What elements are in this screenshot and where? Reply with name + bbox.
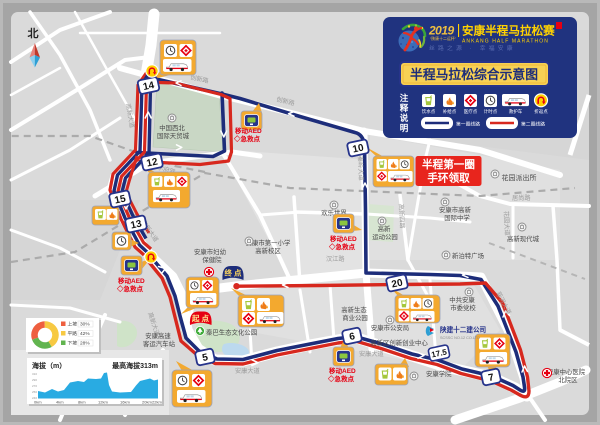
svg-text:下坡: 下坡	[68, 340, 78, 347]
svg-text:30%: 30%	[80, 322, 90, 328]
svg-text:移动AED: 移动AED	[118, 276, 145, 285]
svg-text:释: 释	[400, 103, 409, 113]
svg-text:国际天贸城: 国际天贸城	[157, 131, 190, 140]
svg-text:ANKANG HALF MARATHON: ANKANG HALF MARATHON	[462, 39, 549, 45]
svg-text:起 点: 起 点	[191, 313, 210, 323]
svg-text:北: 北	[28, 26, 39, 40]
svg-text:中共安康: 中共安康	[449, 295, 475, 304]
svg-text:终 点: 终 点	[223, 268, 242, 278]
svg-text:20km: 20km	[142, 400, 152, 405]
svg-text:北院区: 北院区	[558, 375, 578, 384]
svg-text:安康市妇幼: 安康市妇幼	[194, 247, 226, 256]
svg-text:说: 说	[400, 113, 409, 123]
svg-text:手环领取: 手环领取	[427, 172, 470, 185]
svg-text:秦巴生态文化公园: 秦巴生态文化公园	[206, 328, 257, 337]
svg-text:高新生态: 高新生态	[341, 305, 367, 314]
svg-text:饮水点: 饮水点	[422, 108, 436, 115]
svg-text:移动AED: 移动AED	[235, 126, 262, 135]
svg-text:290: 290	[32, 378, 37, 382]
svg-text:花园派出所: 花园派出所	[502, 173, 537, 182]
svg-text:秦岭大道: 秦岭大道	[356, 156, 365, 181]
svg-text:计时点: 计时点	[484, 108, 498, 115]
svg-text:◇急救点: ◇急救点	[116, 284, 144, 293]
svg-text:◇急救点: ◇急救点	[328, 242, 356, 251]
svg-text:运动公园: 运动公园	[372, 233, 398, 241]
svg-text:4km: 4km	[56, 400, 64, 405]
svg-text:上坡: 上坡	[68, 321, 78, 328]
svg-text:国际中学: 国际中学	[444, 213, 470, 222]
svg-text:12km: 12km	[98, 400, 108, 405]
svg-text:“陕康十二运杯”: “陕康十二运杯”	[430, 36, 457, 41]
svg-text:高新四路: 高新四路	[397, 204, 406, 230]
svg-text:◇急救点: ◇急救点	[327, 374, 355, 383]
svg-text:救护车: 救护车	[509, 108, 523, 115]
svg-text:补给点: 补给点	[443, 108, 457, 115]
svg-text:0km: 0km	[34, 400, 42, 405]
svg-text:22km: 22km	[152, 400, 162, 405]
svg-text:汉江路: 汉江路	[326, 255, 345, 263]
svg-text:移动AED: 移动AED	[329, 366, 356, 375]
svg-text:平路: 平路	[68, 330, 78, 337]
svg-text:半程第一圈: 半程第一圈	[422, 158, 475, 171]
svg-text:8km: 8km	[78, 400, 86, 405]
svg-text:最高海拔313m: 最高海拔313m	[112, 361, 158, 370]
svg-text:安康中心医院: 安康中心医院	[547, 367, 586, 376]
svg-text:高新区创新创业中心: 高新区创新创业中心	[370, 338, 428, 347]
svg-text:250: 250	[32, 390, 37, 394]
svg-text:安康市高新: 安康市高新	[439, 205, 472, 214]
svg-text:安康大道: 安康大道	[359, 350, 384, 358]
svg-text:医疗点: 医疗点	[464, 108, 478, 115]
svg-text:移动AED: 移动AED	[330, 234, 357, 243]
svg-text:高新现代城: 高新现代城	[507, 234, 540, 243]
svg-text:高新校区: 高新校区	[255, 246, 281, 255]
svg-text:安康大道: 安康大道	[235, 367, 260, 375]
svg-text:第二圈线路: 第二圈线路	[521, 121, 545, 128]
svg-text:安康学院: 安康学院	[426, 369, 452, 378]
svg-text:中国西北: 中国西北	[159, 123, 185, 132]
svg-text:半程马拉松综合示意图: 半程马拉松综合示意图	[410, 67, 538, 82]
svg-text:丝路之源 · 幸福安康: 丝路之源 · 幸福安康	[429, 44, 516, 52]
svg-text:安康半程马拉松赛: 安康半程马拉松赛	[462, 24, 555, 38]
svg-text:◇急救点: ◇急救点	[233, 134, 261, 143]
svg-text:310: 310	[32, 372, 37, 376]
svg-text:居尚路: 居尚路	[512, 194, 531, 202]
svg-text:42%: 42%	[80, 331, 90, 337]
svg-text:市委党校: 市委党校	[450, 303, 476, 312]
svg-text:客运汽车站: 客运汽车站	[143, 339, 176, 348]
svg-text:第一圈线路: 第一圈线路	[456, 121, 480, 128]
svg-text:商业公园: 商业公园	[342, 313, 368, 322]
svg-text:折返点: 折返点	[534, 108, 548, 115]
svg-text:高新: 高新	[378, 224, 391, 233]
svg-text:SCSSC NO.12 CO.LTD: SCSSC NO.12 CO.LTD	[440, 336, 480, 340]
svg-text:花园大道: 花园大道	[502, 211, 511, 236]
svg-text:新泊特广场: 新泊特广场	[452, 251, 484, 260]
svg-text:安康高速: 安康高速	[145, 331, 171, 340]
svg-text:陕建十二建公司: 陕建十二建公司	[440, 325, 486, 334]
svg-text:明: 明	[400, 123, 409, 133]
svg-text:270: 270	[32, 384, 37, 388]
svg-text:海拔（m）: 海拔（m）	[32, 361, 66, 370]
svg-text:保健院: 保健院	[202, 255, 222, 264]
svg-text:注: 注	[400, 93, 409, 103]
svg-text:16km: 16km	[120, 400, 130, 405]
svg-text:28%: 28%	[80, 341, 90, 347]
